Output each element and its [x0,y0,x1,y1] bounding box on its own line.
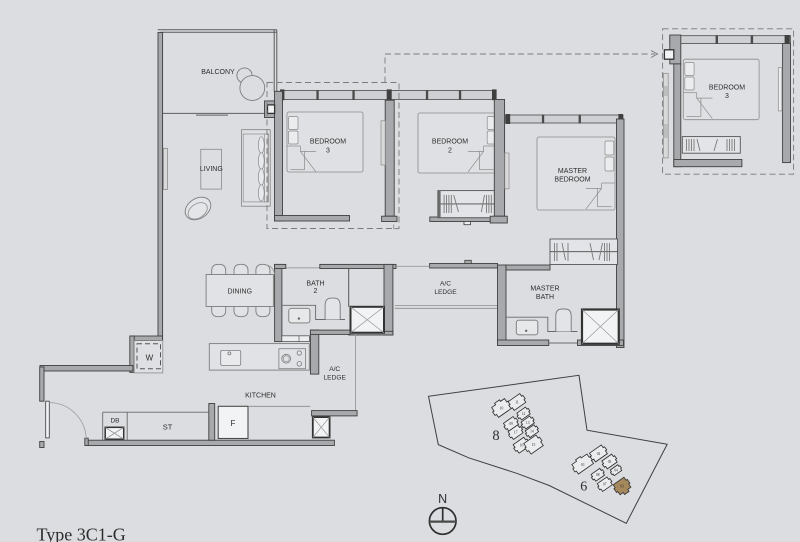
svg-text:DINING: DINING [228,289,253,296]
svg-text:08: 08 [596,473,600,477]
svg-text:01: 01 [581,463,585,467]
svg-text:BEDROOM: BEDROOM [554,176,590,183]
svg-text:6: 6 [580,480,587,495]
svg-text:DB: DB [110,418,119,425]
svg-text:N: N [438,492,447,506]
svg-text:05: 05 [608,460,612,464]
svg-text:8: 8 [492,428,499,444]
svg-text:14: 14 [530,430,534,434]
svg-text:04: 04 [614,468,618,472]
svg-text:2: 2 [448,148,452,155]
svg-text:2: 2 [314,288,318,295]
svg-text:W: W [146,353,154,362]
svg-text:BEDROOM: BEDROOM [310,139,346,146]
svg-text:MASTER: MASTER [558,168,587,175]
svg-text:16: 16 [520,444,524,448]
svg-text:02: 02 [597,452,601,456]
svg-text:03: 03 [620,484,624,488]
svg-text:F: F [231,419,236,428]
svg-text:LEDGE: LEDGE [324,375,347,382]
svg-text:13: 13 [526,421,530,425]
svg-text:A/C: A/C [440,281,451,288]
svg-text:LEDGE: LEDGE [434,289,457,296]
svg-text:3: 3 [725,93,729,100]
svg-text:LIVING: LIVING [200,166,223,173]
svg-text:ST: ST [163,422,173,431]
svg-text:11: 11 [515,400,519,404]
svg-text:BEDROOM: BEDROOM [432,139,468,146]
svg-text:Type 3C1-G: Type 3C1-G [37,525,126,542]
svg-text:07: 07 [603,483,607,487]
svg-text:MASTER: MASTER [530,285,559,292]
svg-text:BALCONY: BALCONY [201,69,235,76]
svg-text:BATH: BATH [306,281,324,288]
svg-text:3: 3 [326,148,330,155]
svg-text:BEDROOM: BEDROOM [709,84,745,91]
svg-text:10: 10 [500,406,504,410]
svg-text:12: 12 [522,412,526,416]
svg-text:17: 17 [514,431,518,435]
svg-text:A/C: A/C [329,366,340,373]
svg-text:09: 09 [509,422,513,426]
svg-text:15: 15 [532,443,536,447]
svg-text:KITCHEN: KITCHEN [245,393,276,400]
svg-text:BATH: BATH [536,294,554,301]
